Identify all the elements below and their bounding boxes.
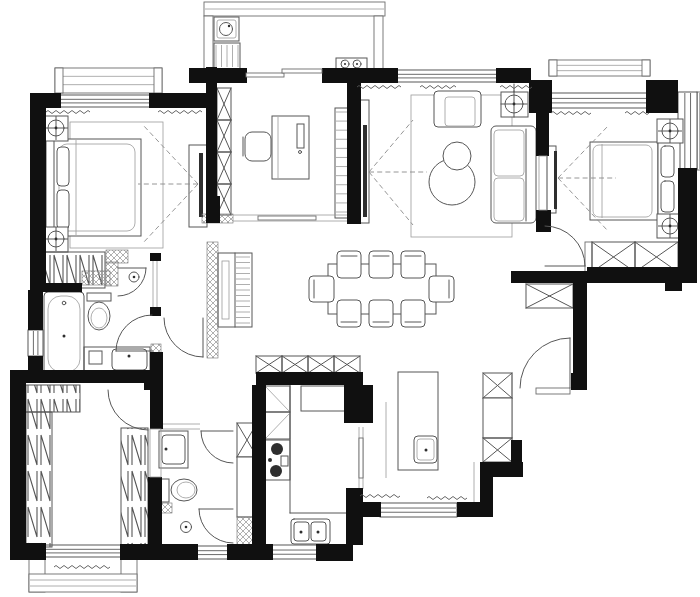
tv-screen (199, 153, 203, 217)
vanity-tray (89, 351, 102, 364)
table-lamp-icon (55, 238, 58, 241)
curtain-squiggle (427, 497, 467, 500)
dining-chair (369, 251, 393, 278)
window-living-top (396, 70, 497, 82)
wall (149, 93, 208, 108)
tub-drain (63, 335, 66, 338)
door-jamb-block (144, 383, 158, 390)
guest-door-arc (108, 390, 148, 430)
wall (344, 385, 373, 423)
curtain-squiggle (420, 86, 456, 89)
wall (252, 385, 266, 545)
wall (480, 475, 493, 504)
tv-sightline (143, 184, 198, 243)
bay-window-bedroom2 (549, 60, 650, 76)
window-dining-south (380, 503, 457, 517)
armchair (434, 91, 481, 127)
burner (271, 443, 283, 455)
sliding-panel (246, 73, 284, 77)
fridge-diagonal (266, 387, 289, 411)
dining-chair (337, 300, 361, 327)
wall (511, 440, 522, 477)
bed-bedroom2 (590, 142, 658, 220)
hatched-wall (106, 250, 128, 263)
sliding-panel (282, 69, 322, 73)
curtain-squiggle (625, 112, 649, 115)
dining-chair (401, 300, 425, 327)
wall (227, 544, 273, 560)
wall (646, 80, 678, 113)
hatched-wall (82, 271, 110, 285)
corridor-door-arc (164, 318, 203, 357)
dining-chair (337, 251, 361, 278)
table-lamp-icon (669, 130, 672, 133)
table-lamp-icon (669, 225, 672, 228)
wall (536, 210, 551, 232)
bath2-door-arc (201, 431, 233, 463)
window-kitchen-south (271, 545, 317, 559)
floor-plan-canvas: Apartment floor plan (0, 0, 700, 597)
wall (10, 543, 46, 560)
study-chair (245, 132, 271, 161)
wall (322, 68, 398, 83)
desk-lamp (297, 124, 304, 148)
table-lamp-icon (55, 127, 58, 130)
toilet-tank (87, 293, 111, 301)
bay-cap (642, 60, 650, 76)
wall (347, 83, 361, 224)
dining-chair (309, 276, 334, 302)
balcony-side-wall (374, 16, 383, 70)
wall (28, 290, 43, 330)
thin-partition (539, 156, 547, 210)
sideboard-inner (222, 261, 229, 319)
floor-lamp-icon (513, 103, 516, 106)
wall (189, 68, 247, 83)
wall (206, 67, 217, 207)
wall (571, 373, 587, 390)
wall (529, 80, 552, 113)
shower-head-dot (133, 276, 136, 279)
sink-dot (165, 448, 168, 451)
coffee-table-small (443, 142, 471, 170)
wall (536, 110, 549, 156)
curtain-squiggle (551, 112, 591, 115)
tv-sightline (143, 125, 198, 184)
wall (457, 502, 493, 517)
wall (30, 283, 82, 292)
window-bath1-west (28, 330, 43, 356)
basin-dot (356, 63, 358, 65)
burner (270, 465, 282, 477)
hatched-wall (207, 242, 218, 358)
sink-dot (425, 449, 428, 452)
curtain-squiggle (158, 111, 202, 114)
window-guest-south (44, 545, 121, 557)
sofa (491, 126, 536, 223)
pillow (57, 190, 69, 229)
bay-cap (55, 68, 63, 93)
desk-dot (299, 151, 302, 154)
wall (10, 373, 26, 560)
shower2-door-arc (199, 509, 233, 543)
wall (511, 271, 587, 283)
curtain-squiggle (360, 495, 400, 498)
wall (256, 372, 363, 385)
tv-sightline (369, 120, 413, 172)
sink-dot (317, 531, 320, 534)
sink-dot (128, 355, 131, 358)
stove-grill (281, 456, 288, 466)
wall (30, 93, 61, 108)
wardrobe-guest-right (121, 428, 148, 547)
curtain-squiggle (357, 86, 401, 89)
entry-door-arc (520, 338, 570, 388)
window-bath2-south (197, 546, 228, 559)
sliding-panel (359, 438, 363, 478)
wall (573, 282, 587, 375)
wall (30, 106, 46, 290)
basin-dot (344, 63, 346, 65)
wall (347, 502, 381, 517)
entry-threshold (536, 388, 570, 394)
vanity-sink (112, 349, 147, 370)
washer-dot (228, 25, 230, 27)
wall (665, 271, 682, 291)
tv-screen (363, 125, 367, 217)
curtain-squiggle (46, 111, 90, 114)
wall-stub (150, 253, 161, 261)
floor-plan-svg (0, 0, 700, 597)
bay-cap (154, 68, 162, 93)
washer-drum (220, 23, 233, 36)
tv-screen (554, 151, 557, 209)
wardrobe-guest-left (26, 412, 52, 547)
window-bedroom2-top (551, 93, 647, 108)
wall (316, 544, 353, 561)
window-master-top (59, 95, 151, 107)
pillow (57, 147, 69, 186)
bath1-door-arc (116, 315, 152, 351)
sink-dot (300, 531, 303, 534)
curtain-squiggle (500, 86, 532, 89)
curtain-squiggle (54, 566, 110, 569)
tv-sightline (369, 172, 413, 225)
wall (10, 370, 160, 383)
dining-chair (369, 300, 393, 327)
bay-window-guest (29, 574, 137, 592)
wall (148, 477, 162, 547)
balcony-side-wall (204, 16, 213, 70)
bay-cap (549, 60, 557, 76)
wall (150, 352, 163, 429)
foyer-tall-cabinet (483, 398, 512, 438)
wall (496, 68, 531, 83)
dining-chair (401, 251, 425, 278)
kitchen-top-counter (301, 386, 345, 411)
dining-chair (429, 276, 454, 302)
bay-window-master (55, 68, 162, 93)
wall (678, 168, 697, 268)
stove-knob (268, 458, 272, 462)
unit-diagonal (266, 414, 289, 438)
study-bookshelf (335, 108, 348, 218)
shower-head-dot (185, 526, 188, 529)
wardrobe-guest-top (26, 385, 80, 412)
wall (206, 196, 220, 223)
sliding-panel (258, 216, 316, 220)
